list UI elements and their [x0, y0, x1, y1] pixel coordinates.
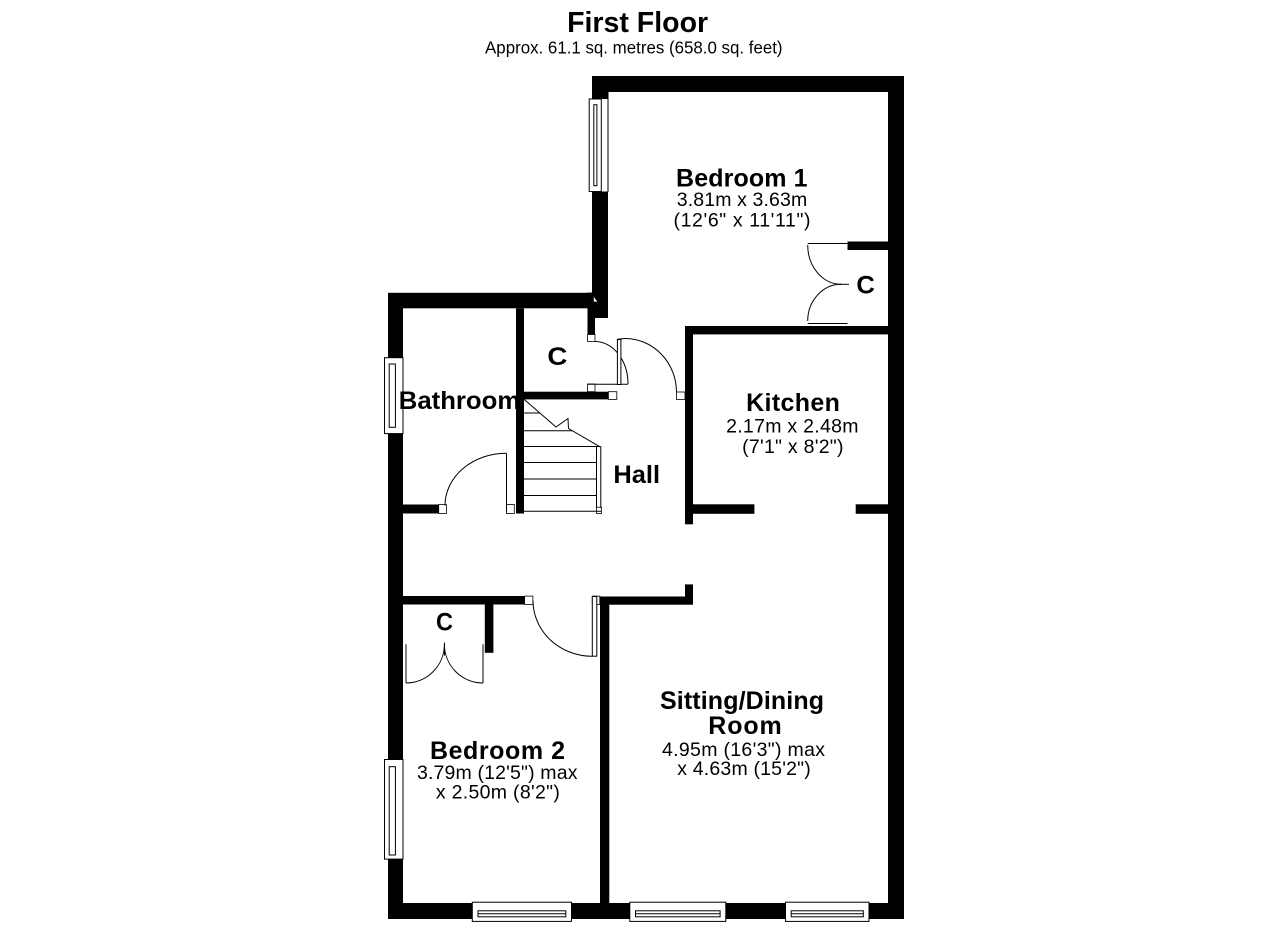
- svg-text:Kitchen: Kitchen: [746, 389, 840, 417]
- svg-text:C: C: [547, 343, 567, 371]
- svg-text:Sitting/Dining: Sitting/Dining: [660, 687, 824, 715]
- svg-text:2.17m x 2.48m: 2.17m x 2.48m: [726, 416, 858, 438]
- svg-text:C: C: [436, 608, 453, 636]
- svg-text:Approx. 61.1 sq. metres (658.0: Approx. 61.1 sq. metres (658.0 sq. feet): [485, 38, 783, 58]
- svg-text:C: C: [856, 271, 875, 299]
- svg-text:x 4.63m (15'2"): x 4.63m (15'2"): [677, 758, 811, 780]
- svg-text:Bathroom: Bathroom: [399, 387, 521, 415]
- svg-text:First Floor: First Floor: [567, 7, 708, 39]
- svg-text:Bedroom 2: Bedroom 2: [430, 737, 565, 765]
- svg-text:(12'6" x 11'11"): (12'6" x 11'11"): [674, 210, 811, 232]
- svg-text:x 2.50m (8'2"): x 2.50m (8'2"): [436, 782, 560, 804]
- svg-text:Bedroom 1: Bedroom 1: [676, 164, 808, 192]
- svg-text:Hall: Hall: [613, 461, 660, 489]
- svg-text:(7'1" x 8'2"): (7'1" x 8'2"): [742, 436, 843, 458]
- svg-text:Room: Room: [708, 712, 782, 740]
- svg-text:3.81m x 3.63m: 3.81m x 3.63m: [677, 189, 808, 211]
